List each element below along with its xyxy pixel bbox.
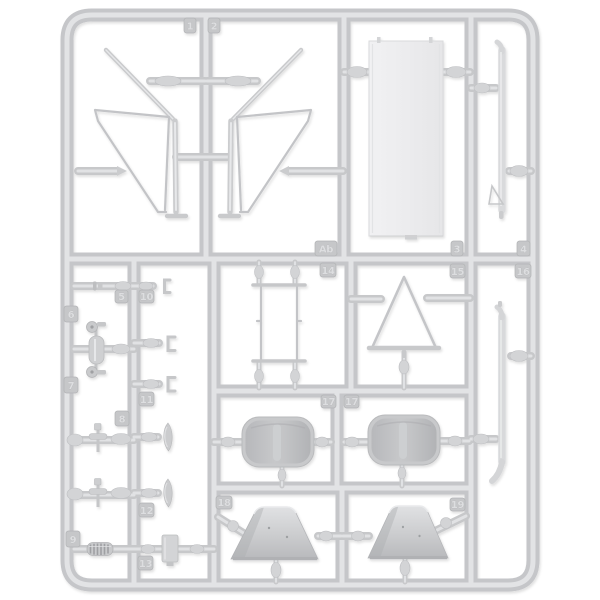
svg-text:10: 10 [140, 292, 154, 303]
part-tag-17-left: 17 [321, 395, 336, 408]
svg-text:9: 9 [70, 535, 77, 546]
part-tag-13: 13 [138, 556, 153, 570]
svg-text:2: 2 [211, 22, 218, 33]
part-8-cross-lever [89, 479, 107, 508]
svg-text:3: 3 [454, 245, 461, 256]
sprue-code-tag: Ab [315, 241, 337, 256]
svg-text:13: 13 [139, 559, 153, 570]
svg-text:8: 8 [119, 415, 126, 426]
part-tag-10: 10 [139, 290, 154, 303]
part-19-hood [368, 506, 448, 559]
part-14-ladder-frame [253, 285, 305, 361]
svg-text:12: 12 [140, 506, 154, 517]
sprue-canvas: 1 2 Ab 3 4 14 15 16 5 10 6 7 [0, 0, 600, 600]
svg-text:16: 16 [516, 267, 530, 278]
part-10-fork [165, 280, 171, 293]
part-18-hood [231, 507, 318, 560]
svg-text:Ab: Ab [319, 245, 333, 256]
svg-text:15: 15 [451, 267, 465, 278]
part-tag-17-right: 17 [344, 395, 359, 408]
part-9-spring [87, 543, 113, 556]
part-tag-2: 2 [208, 18, 220, 33]
part-tag-1: 1 [184, 18, 196, 33]
svg-text:4: 4 [520, 245, 527, 256]
part-6-axle [87, 322, 107, 378]
part-12-blades [164, 423, 172, 507]
svg-text:18: 18 [217, 498, 231, 509]
part-11-forks [168, 337, 175, 391]
svg-text:1: 1 [187, 22, 194, 33]
part-tag-14: 14 [320, 263, 336, 277]
part-tag-16: 16 [515, 264, 531, 278]
part-tag-19: 19 [450, 498, 465, 511]
part-7-cross-lever [89, 424, 107, 453]
svg-text:6: 6 [68, 310, 75, 321]
part-tag-7: 7 [64, 377, 78, 393]
svg-text:14: 14 [321, 266, 335, 277]
part-17-seat-right [368, 415, 440, 465]
part-tag-12: 12 [139, 503, 154, 517]
svg-text:11: 11 [140, 395, 154, 406]
part-tag-15: 15 [450, 264, 465, 278]
part-tag-6: 6 [64, 306, 78, 322]
svg-text:5: 5 [118, 292, 125, 303]
part-16-frame-rail [492, 301, 502, 481]
part-3-clear-panel [369, 37, 443, 240]
sprue-photo: 1 2 Ab 3 4 14 15 16 5 10 6 7 [0, 0, 600, 600]
part-2-windshield-frame [220, 50, 311, 216]
part-tag-5: 5 [115, 290, 128, 303]
sprue: 1 2 Ab 3 4 14 15 16 5 10 6 7 [64, 15, 533, 585]
svg-text:17: 17 [345, 397, 359, 408]
svg-text:17: 17 [322, 397, 336, 408]
part-4-frame-rail [489, 42, 504, 219]
part-tag-9: 9 [66, 531, 80, 547]
part-1-windshield-frame [95, 50, 186, 216]
svg-text:19: 19 [451, 500, 465, 511]
part-tag-3: 3 [451, 241, 463, 256]
part-tag-11: 11 [139, 392, 154, 406]
part-17-seat-left [242, 417, 314, 467]
part-tag-4: 4 [517, 241, 530, 256]
part-13-block [162, 535, 178, 566]
part-tag-18: 18 [216, 496, 232, 509]
part-15-triangle [369, 277, 439, 358]
svg-text:7: 7 [68, 381, 75, 392]
part-tag-8: 8 [115, 411, 129, 426]
